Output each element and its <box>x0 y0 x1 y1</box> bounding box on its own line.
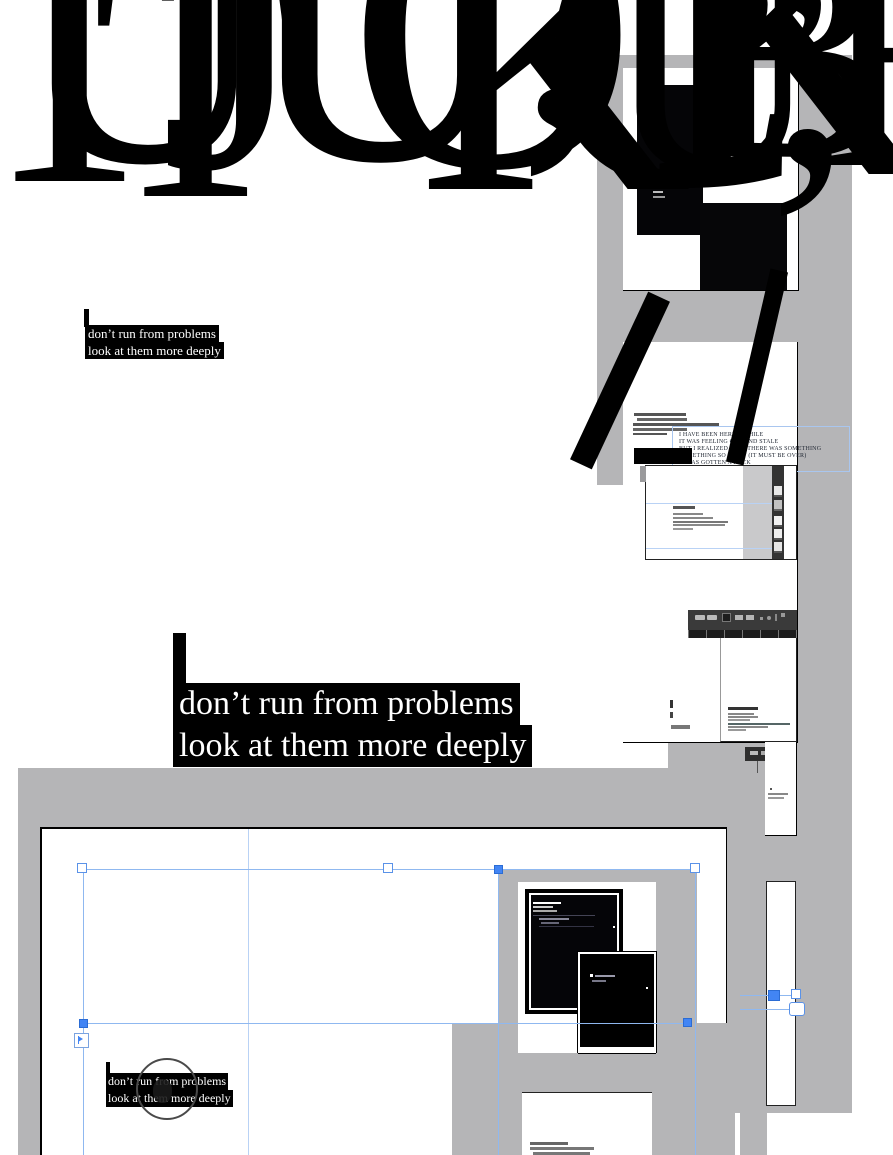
poem-box-small-line2[interactable]: look at them more deeply <box>85 342 224 359</box>
typed-poem-line-2: IT WAS FEELING OLD AND STALE <box>679 439 821 446</box>
micro-dot <box>646 987 648 989</box>
micro-code-line <box>539 926 594 927</box>
giant-letter-serif-foot <box>634 448 692 464</box>
toolbar-icon <box>767 616 771 620</box>
micro-heading-bar <box>673 506 695 509</box>
toolbar-field <box>750 751 758 755</box>
loupe-cursor-blob <box>153 1079 172 1103</box>
mini-control-toolbar[interactable] <box>688 610 797 630</box>
micro-mark <box>671 725 690 729</box>
toolbar-field <box>746 615 754 620</box>
micro-mark <box>770 788 772 790</box>
micro-dot <box>590 974 593 977</box>
column-guide[interactable] <box>248 829 249 1155</box>
micro-code-line <box>539 918 569 920</box>
micro-code-line <box>595 975 615 977</box>
frame-edge-mid[interactable] <box>498 869 499 1155</box>
toolbar-icon <box>760 617 763 620</box>
micro-text-bar <box>728 716 758 718</box>
frame-edge-left[interactable] <box>83 869 84 1155</box>
guide-line[interactable] <box>646 548 772 549</box>
typed-poem-line-3: BUT I REALIZED THAT THERE WAS SOMETHING <box>679 446 821 453</box>
pasteboard-right-strip <box>740 1113 767 1155</box>
micro-text-bar <box>673 513 703 515</box>
poem-box-large-line2[interactable]: look at them more deeply <box>173 725 532 767</box>
selection-handle-filled[interactable] <box>768 990 780 1001</box>
poem-box-small-line1[interactable]: don’t run from problems <box>85 325 219 342</box>
micro-code-line <box>533 915 595 916</box>
text-placeholder-bar <box>530 1147 594 1150</box>
selection-edge-line <box>740 995 793 996</box>
window-gray-strip <box>743 466 772 559</box>
micro-text-bar <box>768 797 784 799</box>
design-canvas: I HAVE BEEN HERE A WHILE IT WAS FEELING … <box>0 0 893 1155</box>
text-placeholder-bar <box>637 418 687 421</box>
micro-text-bar <box>728 723 790 725</box>
micro-code-line <box>533 906 553 908</box>
micro-dot <box>613 926 615 928</box>
window-notch <box>640 466 646 482</box>
micro-code-line <box>592 980 606 982</box>
micro-text-bar <box>728 719 750 721</box>
code-frame-b <box>578 952 656 1052</box>
dock-icon[interactable] <box>774 500 782 511</box>
micro-code-line <box>533 902 561 904</box>
dock-icon[interactable] <box>774 542 782 553</box>
poem-box-large-line1[interactable]: don’t run from problems <box>173 683 520 725</box>
giant-letter: E <box>816 0 893 220</box>
toolbar-reference-icon <box>722 613 731 622</box>
strip-page <box>765 742 797 836</box>
toolbar-field <box>695 615 705 620</box>
micro-mark <box>670 712 673 718</box>
outport-flag-pole <box>78 1036 79 1044</box>
micro-text-bar <box>673 521 728 523</box>
mini-ruler <box>688 630 797 638</box>
selection-handle-filled[interactable] <box>683 1018 692 1027</box>
micro-text-bar <box>673 517 713 519</box>
micro-code-line <box>533 910 557 912</box>
toolbar-icon <box>775 614 777 621</box>
text-cursor-flag <box>173 633 186 684</box>
code-frame-b-footer <box>578 1047 656 1054</box>
mini-app-window-1[interactable] <box>645 465 797 560</box>
selection-edge-line <box>740 1009 789 1010</box>
selection-handle[interactable] <box>789 1002 805 1016</box>
toolbar-icon <box>781 613 785 617</box>
micro-text-bar <box>673 528 693 530</box>
text-placeholder-bar <box>634 413 686 416</box>
toolbar-field <box>707 615 717 620</box>
mini-document-page <box>720 638 797 742</box>
text-placeholder-bar <box>633 433 667 435</box>
micro-text-bar <box>768 793 788 795</box>
selection-handle-filled[interactable] <box>79 1019 88 1028</box>
tools-dock <box>772 466 784 559</box>
typed-poem-line-4: SOMETHING SO SHINY (IT MUST BE OVER) <box>679 453 821 460</box>
text-outport-icon[interactable] <box>74 1033 89 1048</box>
dock-icon[interactable] <box>774 486 782 497</box>
micro-mark <box>670 700 673 708</box>
micro-mark <box>757 761 758 773</box>
frame-edge-right[interactable] <box>695 869 696 1155</box>
micro-code-line <box>541 922 559 924</box>
selection-handle-filled[interactable] <box>494 865 503 874</box>
frame-edge-bottom[interactable] <box>83 1023 688 1024</box>
micro-text-bar <box>728 726 768 728</box>
toolbar-field <box>735 615 743 620</box>
dock-icon[interactable] <box>774 516 782 527</box>
selection-handle[interactable] <box>383 863 393 873</box>
micro-text-bar <box>673 524 725 526</box>
micro-text-bar <box>728 729 746 731</box>
selection-handle[interactable] <box>77 863 87 873</box>
guide-line[interactable] <box>646 503 772 504</box>
selection-handle[interactable] <box>791 989 801 999</box>
micro-heading-bar <box>728 707 758 710</box>
text-placeholder-bar <box>530 1142 568 1145</box>
dock-icon[interactable] <box>774 529 782 540</box>
micro-text-bar <box>728 713 754 715</box>
selection-handle[interactable] <box>690 863 700 873</box>
inner-page-b <box>522 1092 652 1155</box>
